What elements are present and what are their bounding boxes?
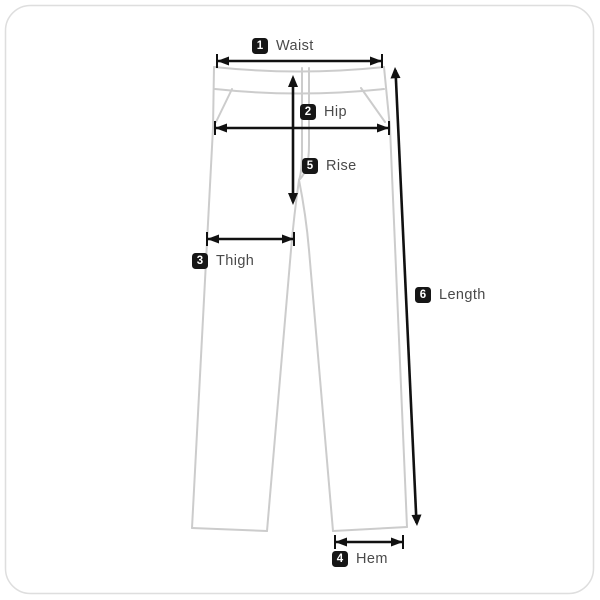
- length-arrow-bottom-head: [412, 515, 422, 527]
- hip-number-badge: 2: [300, 104, 316, 120]
- waist-arrow: [217, 54, 382, 68]
- waist-label-text: Waist: [276, 38, 314, 54]
- thigh-number-badge: 3: [192, 253, 208, 269]
- hem-number-badge: 4: [332, 551, 348, 567]
- waistband-bottom-line: [215, 89, 384, 94]
- rise-number-badge: 5: [302, 158, 318, 174]
- waist-arrow-right-head: [370, 57, 382, 66]
- thigh-arrow: [207, 232, 294, 246]
- diagram-canvas: [0, 0, 600, 600]
- length-number-badge: 6: [415, 287, 431, 303]
- measurement-label-hip: 2 Hip: [300, 104, 347, 120]
- size-guide-diagram: 1 Waist 2 Hip 3 Thigh 4 Hem 5 Rise 6 Len…: [0, 0, 600, 600]
- right-outer-seam: [384, 67, 407, 527]
- right-leg-hem-line: [333, 527, 407, 531]
- measurement-label-waist: 1 Waist: [252, 38, 314, 54]
- right-inseam: [299, 180, 333, 531]
- pants-outline: [192, 67, 407, 531]
- waist-arrow-left-head: [217, 57, 229, 66]
- length-arrow-line: [396, 70, 417, 523]
- measurement-label-rise: 5 Rise: [302, 158, 357, 174]
- waist-number-badge: 1: [252, 38, 268, 54]
- left-pocket-line: [216, 89, 232, 122]
- left-outer-seam: [192, 67, 214, 528]
- hem-arrow-left-head: [335, 538, 347, 547]
- length-label-text: Length: [439, 287, 486, 303]
- rise-arrow-top-head: [288, 75, 298, 87]
- measurement-label-hem: 4 Hem: [332, 551, 388, 567]
- hem-label-text: Hem: [356, 551, 388, 567]
- length-arrow-top-head: [391, 67, 401, 79]
- hem-arrow: [335, 535, 403, 549]
- rise-arrow: [288, 75, 298, 205]
- right-pocket-line: [361, 88, 385, 122]
- waistband-top-line: [214, 67, 384, 72]
- rise-label-text: Rise: [326, 158, 357, 174]
- thigh-label-text: Thigh: [216, 253, 254, 269]
- measurement-label-thigh: 3 Thigh: [192, 253, 254, 269]
- hip-arrow-left-head: [215, 124, 227, 133]
- hem-arrow-right-head: [391, 538, 403, 547]
- measurement-label-length: 6 Length: [415, 287, 486, 303]
- left-leg-hem-line: [192, 528, 267, 531]
- thigh-arrow-left-head: [207, 235, 219, 244]
- hip-arrow-right-head: [377, 124, 389, 133]
- hip-label-text: Hip: [324, 104, 347, 120]
